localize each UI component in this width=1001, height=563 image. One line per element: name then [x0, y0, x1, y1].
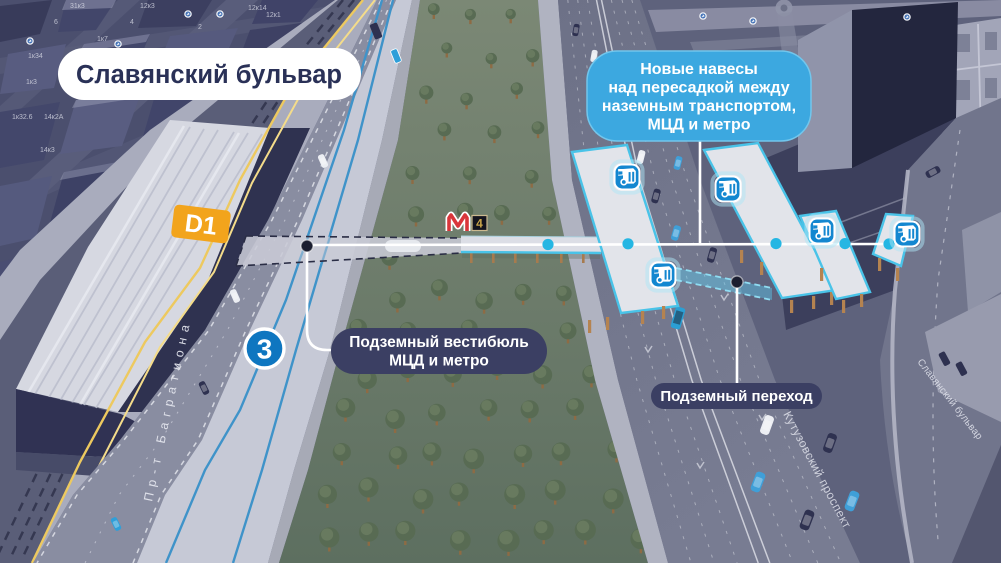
svg-text:над пересадкой между: над пересадкой между [608, 80, 789, 97]
svg-text:D1: D1 [183, 209, 218, 241]
svg-text:1к7: 1к7 [97, 36, 108, 43]
svg-text:6: 6 [54, 19, 58, 26]
svg-text:14к2А: 14к2А [44, 114, 64, 121]
svg-text:4: 4 [130, 19, 134, 26]
svg-text:МЦД и метро: МЦД и метро [389, 353, 489, 370]
svg-text:наземным транспортом,: наземным транспортом, [602, 98, 796, 115]
svg-text:1к3: 1к3 [26, 79, 37, 86]
svg-text:12к14: 12к14 [248, 5, 267, 12]
svg-text:Славянский бульвар: Славянский бульвар [76, 61, 342, 89]
svg-text:12к1: 12к1 [266, 12, 281, 19]
svg-text:Новые навесы: Новые навесы [640, 61, 758, 78]
svg-text:4: 4 [476, 217, 483, 231]
svg-text:12к3: 12к3 [140, 3, 155, 10]
svg-text:2: 2 [198, 24, 202, 31]
svg-text:МЦД и метро: МЦД и метро [647, 117, 750, 134]
svg-text:Подземный вестибюль: Подземный вестибюль [349, 334, 529, 351]
svg-text:1к32.6: 1к32.6 [12, 114, 33, 121]
svg-text:3: 3 [257, 334, 273, 365]
svg-text:1к34: 1к34 [28, 53, 43, 60]
svg-text:31к3: 31к3 [70, 3, 85, 10]
svg-text:Подземный переход: Подземный переход [660, 388, 813, 405]
svg-text:14к3: 14к3 [40, 147, 55, 154]
